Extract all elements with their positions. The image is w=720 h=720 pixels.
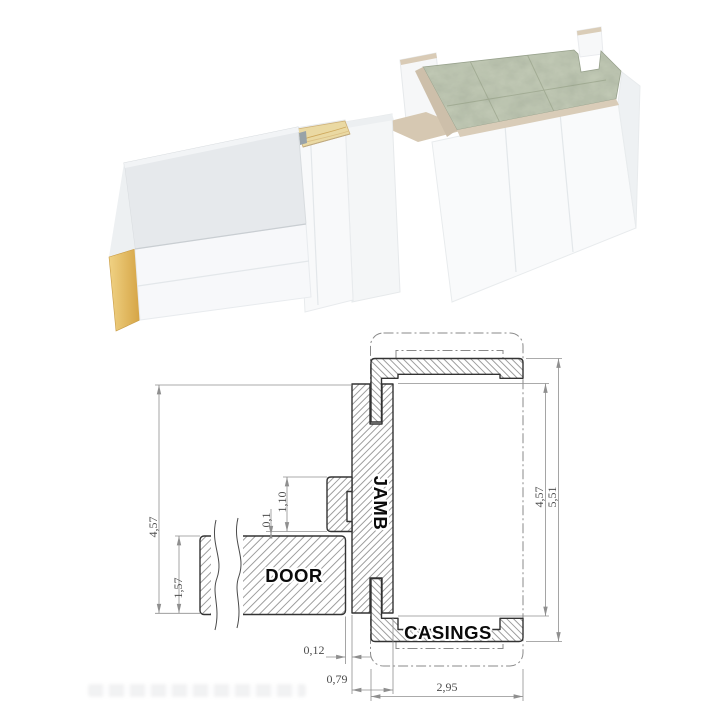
door-wood-core bbox=[109, 249, 140, 331]
dim-jamb-height-right: 4,57 bbox=[532, 487, 546, 508]
dim-wall-thickness: 2,95 bbox=[437, 680, 458, 694]
cross-section: DOOR JAMB CASINGS 4,57 1,57 1,10 0,1 bbox=[146, 333, 562, 701]
casing-3d bbox=[345, 114, 400, 302]
dim-jamb-thickness: 0,79 bbox=[327, 672, 348, 686]
door-label: DOOR bbox=[265, 565, 323, 586]
dim-door-jamb-gap: 0,12 bbox=[304, 643, 325, 657]
doorstop-section bbox=[327, 477, 352, 532]
door-frame-illustration: DOOR JAMB CASINGS 4,57 1,57 1,10 0,1 bbox=[0, 0, 720, 720]
jamb-label: JAMB bbox=[370, 476, 391, 530]
casings-label: CASINGS bbox=[404, 622, 492, 643]
render-3d bbox=[109, 27, 640, 331]
dim-door-thickness: 1,57 bbox=[171, 578, 185, 599]
seal-clip bbox=[299, 131, 307, 145]
dim-door-clearance: 0,1 bbox=[259, 513, 273, 528]
watermark bbox=[88, 684, 306, 697]
door-3d bbox=[109, 127, 311, 331]
wall-3d bbox=[378, 27, 640, 302]
casing-front-face bbox=[345, 114, 400, 302]
top-casing-section bbox=[371, 359, 523, 423]
dim-casings-overall: 5,51 bbox=[545, 487, 559, 508]
dim-doorstop-height: 1,10 bbox=[275, 492, 289, 513]
top-casing-ridge bbox=[396, 351, 503, 359]
dim-jamb-height-left: 4,57 bbox=[146, 517, 160, 538]
